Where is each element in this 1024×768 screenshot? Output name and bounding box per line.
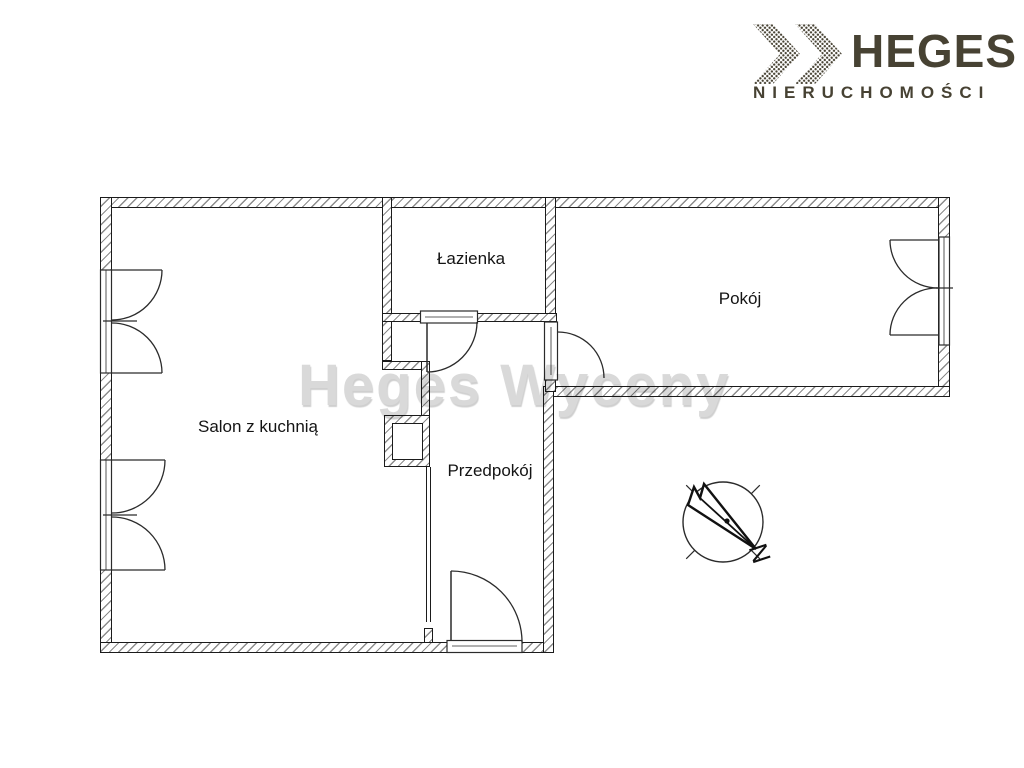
logo-chevrons-icon (750, 22, 846, 86)
brand-tagline: NIERUCHOMOŚCI (753, 83, 990, 103)
room-label-lazienka: Łazienka (391, 249, 551, 269)
room-label-przedpokoj: Przedpokój (400, 461, 580, 481)
wall-lazienka-bottom (382, 313, 557, 322)
room-label-salon: Salon z kuchnią (158, 417, 358, 437)
wall-przedpokoj-right (543, 386, 554, 653)
partition-salon-przedpokoj (426, 467, 431, 622)
brand-name: HEGES (851, 24, 1017, 78)
wall-left (100, 197, 112, 653)
wall-bottom (100, 642, 554, 653)
floor-plan-page: HEGES NIERUCHOMOŚCI Heges Wyceny (0, 0, 1024, 768)
wall-right (938, 197, 950, 397)
shaft-interior (392, 423, 423, 460)
door-entrance (447, 571, 522, 653)
room-label-pokoj: Pokój (660, 289, 820, 309)
wall-top (100, 197, 950, 208)
compass-north-arrow: N (683, 482, 777, 567)
compass-north-label: N (743, 540, 777, 567)
watermark-text: Heges Wyceny (298, 352, 730, 419)
wall-salon-lazienka (382, 197, 392, 361)
wall-stub-bottom (424, 628, 433, 643)
